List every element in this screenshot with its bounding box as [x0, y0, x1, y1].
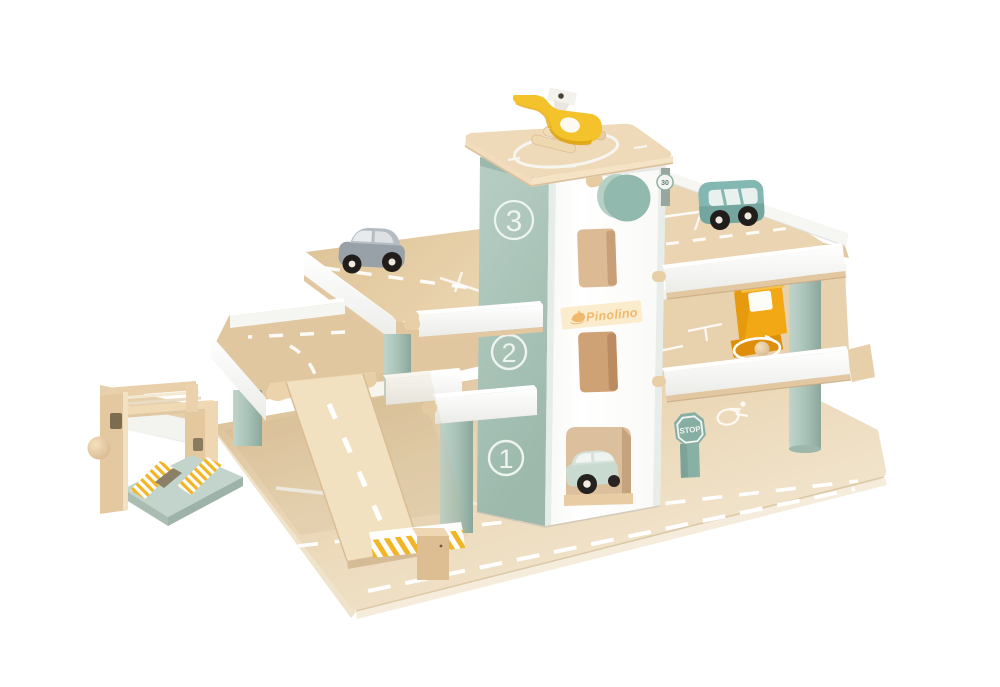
- svg-text:3: 3: [506, 205, 523, 238]
- svg-text:30: 30: [661, 180, 669, 187]
- svg-text:1: 1: [498, 444, 513, 474]
- svg-text:2: 2: [501, 338, 516, 368]
